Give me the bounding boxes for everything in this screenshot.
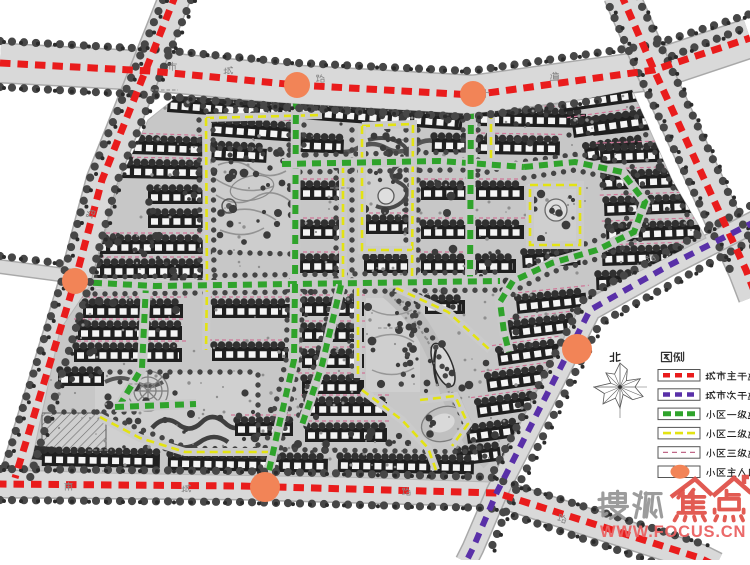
svg-text:WWW.FOCUS.CN: WWW.FOCUS.CN: [600, 523, 746, 541]
